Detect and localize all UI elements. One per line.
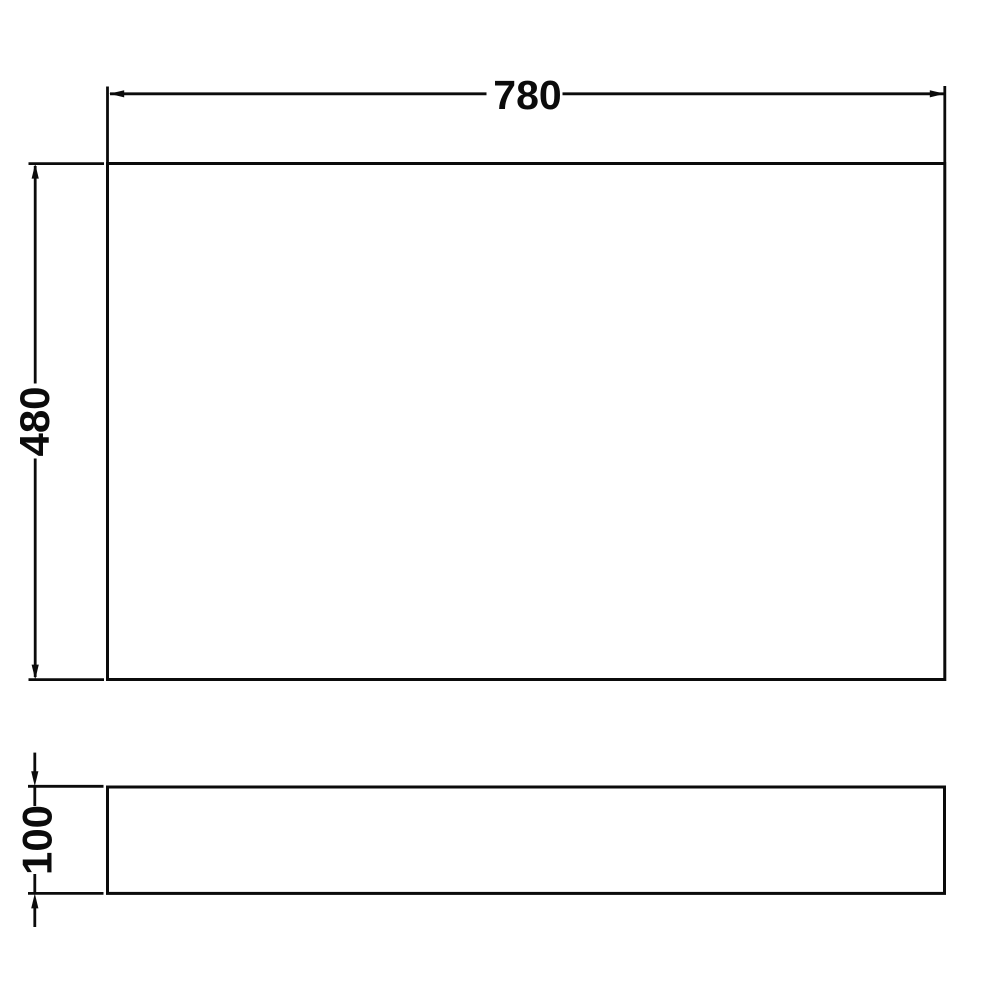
svg-text:100: 100	[14, 805, 61, 875]
svg-text:780: 780	[493, 72, 561, 118]
svg-text:480: 480	[11, 386, 58, 456]
